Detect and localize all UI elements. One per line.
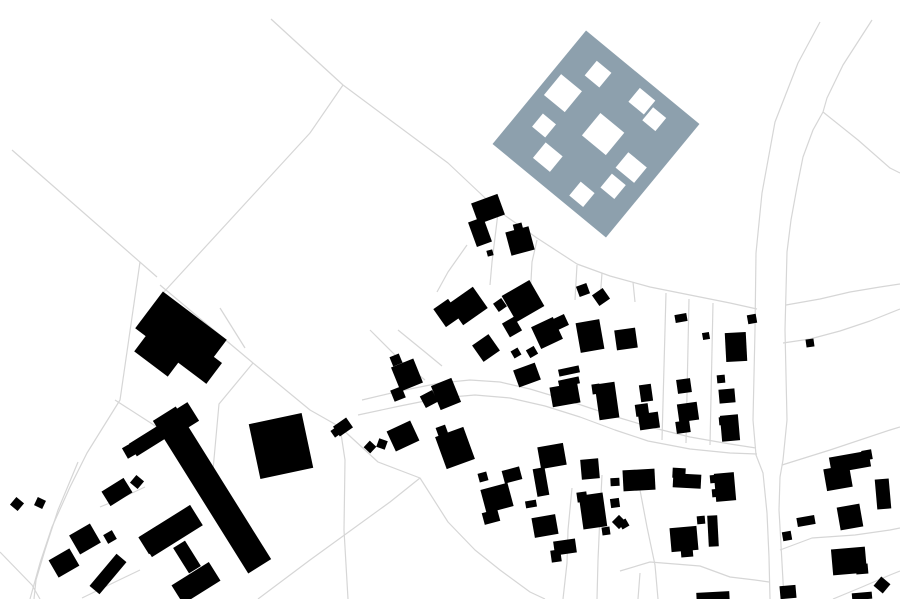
building-footprint [610,478,619,486]
building-footprint [537,443,566,469]
building-footprint [779,585,796,599]
building-footprint [697,516,706,525]
building-footprint [676,378,692,394]
building-footprint [823,465,852,491]
building-footprint [675,420,691,434]
building-footprint [681,548,694,557]
building-footprint [576,491,587,502]
building-footprint [707,515,719,546]
building-footprint [601,526,610,535]
building-footprint [837,504,864,531]
building-footprint [782,531,792,541]
figure-ground-plan [0,0,900,599]
building-footprint [677,402,699,423]
building-footprint [717,375,726,384]
building-footprint [614,328,638,351]
building-footprint [638,412,660,431]
building-footprint [710,475,719,484]
building-footprint [725,332,747,362]
building-footprint [747,314,757,324]
building-footprint [712,489,721,498]
building-footprint [875,478,892,509]
building-footprint [719,417,728,426]
building-footprint [861,449,873,461]
building-footprint [249,413,313,479]
building-footprint [670,526,699,552]
building-footprint [622,469,655,492]
building-footprint [639,384,653,403]
building-footprint [550,549,562,562]
building-footprint [591,383,600,394]
building-footprint [580,458,600,479]
building-footprint [718,388,735,403]
building-footprint [856,563,869,574]
building-footprint [672,468,686,479]
building-footprint [531,514,558,538]
building-footprint [576,319,605,353]
building-footprint [702,332,710,340]
building-footprint [805,338,814,347]
building-footprint [610,498,620,508]
site-plan-svg [0,0,900,599]
